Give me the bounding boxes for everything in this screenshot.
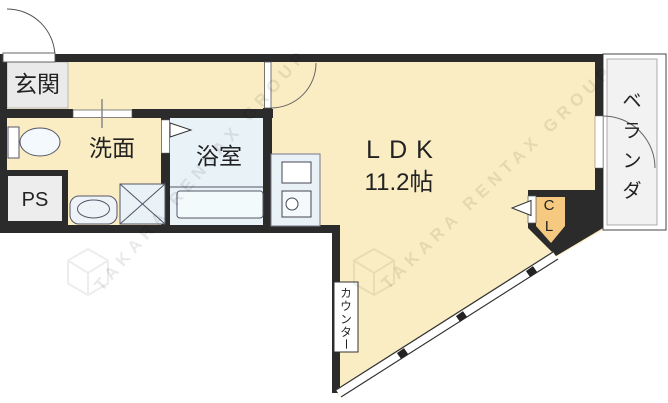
- balcony-door-gap: [595, 116, 603, 168]
- ldk-label: LDK: [366, 136, 442, 164]
- entry-door-arc: [7, 9, 55, 57]
- svg-text:カ: カ: [340, 287, 352, 300]
- floor-plan: TAKARA RENTAX GROUP TAKARA RENTAX GROUP …: [0, 0, 668, 403]
- veranda: [603, 54, 666, 230]
- wall-hall-washroom-a: [0, 109, 73, 118]
- window-mullion-1: [399, 351, 406, 356]
- yokushitsu-label: 浴室: [196, 143, 242, 169]
- svg-text:ン: ン: [622, 151, 641, 172]
- svg-text:C: C: [544, 197, 555, 214]
- svg-text:タ: タ: [340, 326, 352, 339]
- toilet: [8, 127, 60, 158]
- counter-label: カ ウ ン タ ー: [339, 287, 352, 350]
- wash-basin: [70, 196, 117, 224]
- window-mullion-2: [458, 314, 465, 319]
- svg-text:ウ: ウ: [340, 300, 352, 313]
- entry-door: [3, 9, 55, 62]
- ps-label: PS: [22, 189, 49, 211]
- entry-door-leaf: [3, 53, 55, 62]
- window-mullion-3: [528, 269, 535, 274]
- toilet-tank: [8, 127, 19, 158]
- svg-text:ダ: ダ: [622, 180, 641, 202]
- svg-text:ラ: ラ: [622, 121, 641, 142]
- senmen-label: 洗面: [89, 135, 135, 161]
- kitchen-sink: [282, 162, 311, 183]
- svg-text:ー: ー: [339, 338, 351, 350]
- svg-text:ン: ン: [340, 314, 352, 326]
- kitchen-unit: [271, 154, 320, 226]
- svg-text:L: L: [545, 218, 553, 235]
- genkan-label: 玄関: [14, 71, 60, 97]
- floor-plan-drawing: TAKARA RENTAX GROUP TAKARA RENTAX GROUP …: [0, 0, 668, 403]
- wall-ldk-right-lower: [595, 168, 603, 193]
- bathroom-door-gap: [162, 120, 170, 153]
- toilet-bowl: [20, 128, 60, 156]
- ldk-size-label: 11.2帖: [365, 169, 434, 196]
- svg-text:ベ: ベ: [622, 91, 641, 112]
- stove-burner-icon: [286, 198, 298, 210]
